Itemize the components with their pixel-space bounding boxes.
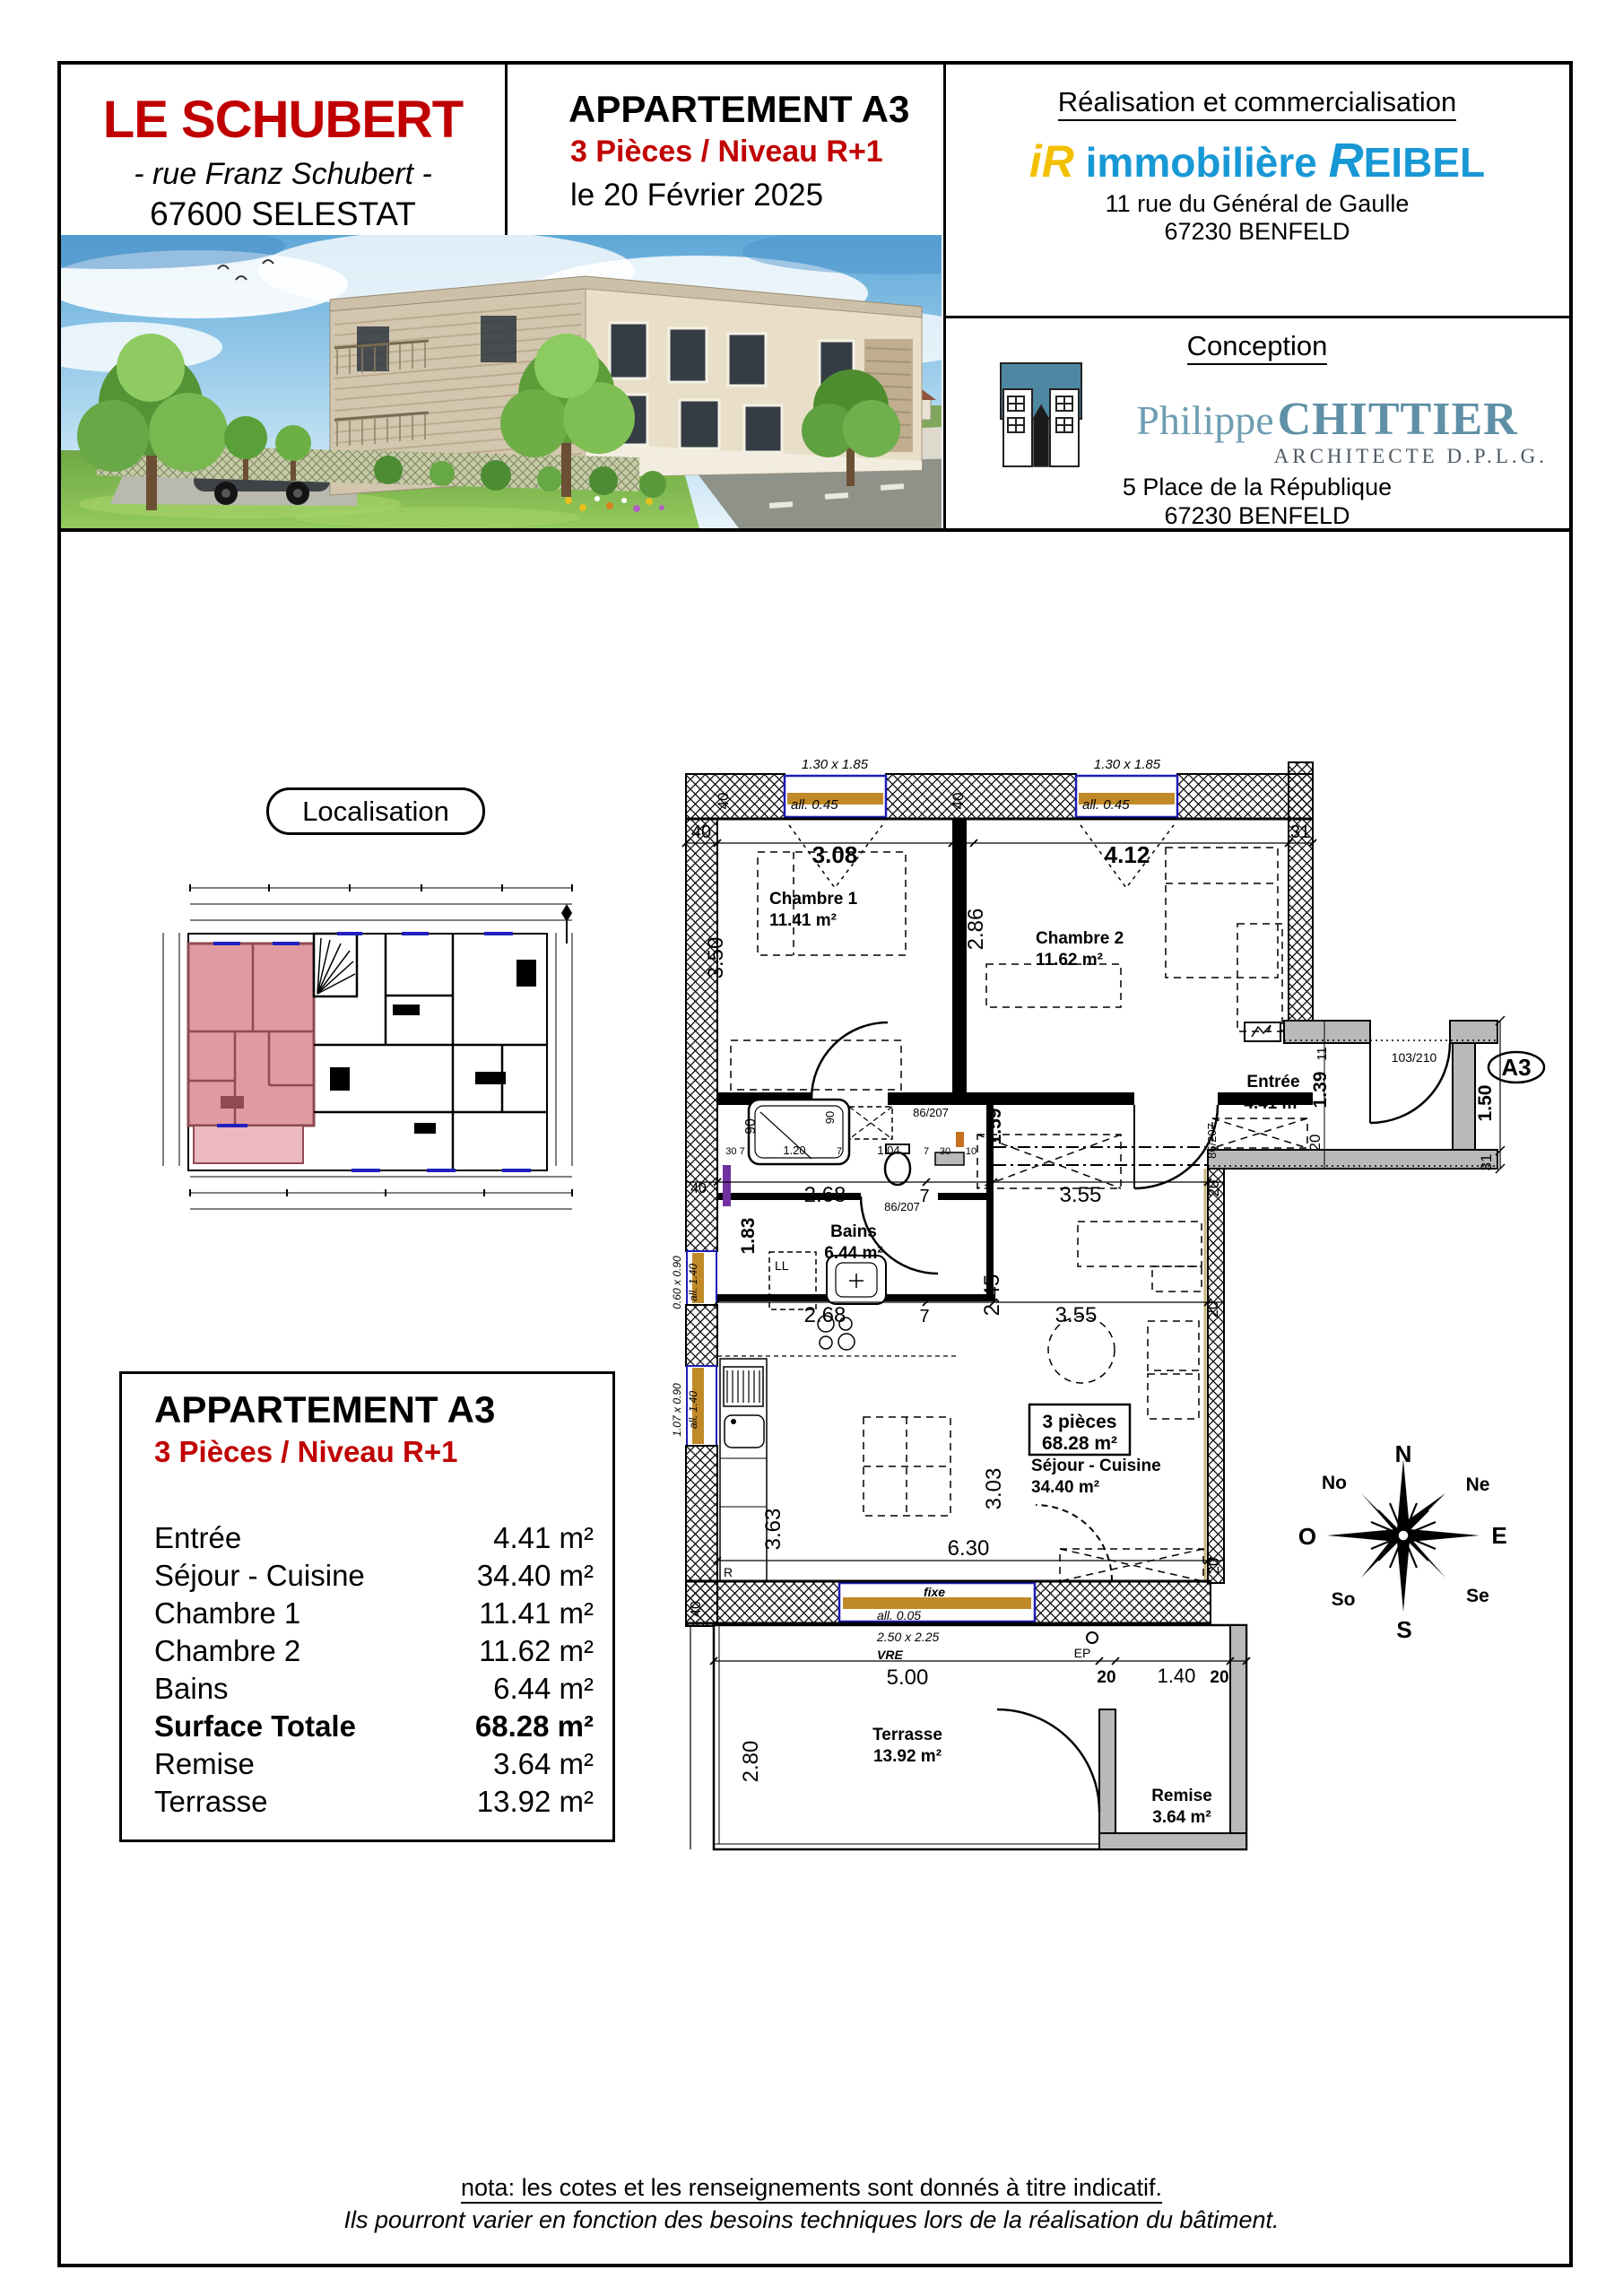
dim: 6.30 xyxy=(948,1536,990,1561)
project-street: - rue Franz Schubert - xyxy=(61,157,505,192)
window-size-label: 1.07 x 0.90 xyxy=(671,1383,683,1437)
dim: 40 xyxy=(690,1181,707,1196)
dim: 20 xyxy=(1205,1180,1222,1197)
dim: 3.63 xyxy=(761,1509,785,1551)
dim: 1.83 xyxy=(738,1218,759,1255)
building-render-image xyxy=(61,235,942,528)
project-city: 67600 SELESTAT xyxy=(61,196,505,233)
table-row: Chambre 111.41 m² xyxy=(154,1595,594,1632)
table-row: Chambre 211.62 m² xyxy=(154,1632,594,1670)
dim: 40 xyxy=(715,793,732,810)
room-area: 11.41 m² xyxy=(769,911,837,930)
dim: 3.03 xyxy=(982,1468,1006,1510)
dim: 1.59 xyxy=(985,1109,1005,1145)
compass-se: Se xyxy=(1466,1586,1489,1606)
dim: 11 xyxy=(1315,1047,1330,1061)
window-sill-label: all. 1.40 xyxy=(687,1391,699,1429)
architect-title: ARCHITECTE D.P.L.G. xyxy=(1094,445,1560,468)
table-row-total: Surface Totale68.28 m² xyxy=(154,1708,594,1745)
washer-label: LL xyxy=(775,1258,789,1273)
room-label: Entrée xyxy=(1246,1073,1299,1091)
dim: 1.40 xyxy=(1158,1665,1196,1687)
apartment-type: 3 Pièces / Niveau R+1 xyxy=(570,135,947,170)
table-row: Séjour - Cuisine34.40 m² xyxy=(154,1557,594,1595)
dim: 90 xyxy=(823,1111,837,1124)
conception-heading: Conception xyxy=(947,330,1567,362)
dim: 30 xyxy=(940,1146,950,1157)
dim: 1.39 xyxy=(1310,1072,1331,1109)
surface-table-rows: Entrée4.41 m² Séjour - Cuisine34.40 m² C… xyxy=(154,1519,594,1821)
compass-rose: N Ne E Se S So O No xyxy=(1298,1440,1507,1643)
floor-plan: 1.30 x 1.85 1.30 x 1.85 all. 0.45 all. 0… xyxy=(668,749,1574,1892)
reibel-ir-mark: iR xyxy=(1029,136,1074,187)
door-label: 103/210 xyxy=(1392,1050,1437,1065)
dim: 2.45 xyxy=(980,1274,1004,1317)
localisation-label: Localisation xyxy=(266,787,485,835)
room-area: 13.92 m² xyxy=(873,1747,942,1766)
dim: 2.86 xyxy=(964,909,988,951)
door-label: 86/207 xyxy=(913,1106,949,1119)
compass-e: E xyxy=(1491,1522,1506,1549)
dim: 3.55 xyxy=(1060,1183,1102,1207)
dim: 2.68 xyxy=(804,1303,846,1327)
localisation-miniplan xyxy=(143,865,592,1220)
surface-table-subtitle: 3 Pièces / Niveau R+1 xyxy=(154,1435,457,1469)
table-row: Remise3.64 m² xyxy=(154,1745,594,1783)
dim: 10 xyxy=(966,1146,976,1157)
compass-n: N xyxy=(1395,1440,1412,1467)
dim: 2.68 xyxy=(804,1183,846,1207)
dim: 7 xyxy=(919,1187,929,1206)
room-label: Chambre 2 xyxy=(1036,929,1124,948)
table-row: Terrasse13.92 m² xyxy=(154,1783,594,1821)
dim: 20 xyxy=(1097,1668,1115,1687)
dim: 7 xyxy=(954,846,964,865)
reibel-rest: EIBEL xyxy=(1364,139,1485,186)
dim: 5.00 xyxy=(887,1665,929,1690)
dim: 2.80 xyxy=(739,1741,763,1783)
room-area: 4.41 m² xyxy=(1244,1094,1302,1113)
dim: 31 xyxy=(1290,822,1310,842)
dim: 1.20 xyxy=(783,1144,805,1157)
label: R xyxy=(724,1565,733,1579)
dim: 1.50 xyxy=(1475,1085,1496,1122)
apartment-badge: A3 xyxy=(1501,1054,1531,1081)
dim: 7 xyxy=(924,1146,929,1157)
dim: 4.12 xyxy=(1105,841,1150,868)
summary-type: 3 pièces xyxy=(1043,1412,1117,1432)
footer-note-1: nota: les cotes et les renseignements so… xyxy=(57,2174,1566,2202)
room-label: Terrasse xyxy=(872,1726,942,1744)
window-sill-label: all. 0.45 xyxy=(1082,797,1130,813)
dim: 7 xyxy=(837,1146,842,1157)
room-label: Bains xyxy=(830,1222,877,1241)
dim: 40 xyxy=(691,822,711,842)
window-type-label: VRE xyxy=(877,1648,903,1662)
window-sill-label: all. 1.40 xyxy=(687,1264,699,1301)
dim: 20 xyxy=(1205,1558,1222,1575)
window-label: fixe xyxy=(924,1585,945,1599)
compass-no: No xyxy=(1322,1473,1347,1493)
dim: 3.50 xyxy=(704,937,728,979)
room-area: 3.64 m² xyxy=(1152,1808,1211,1827)
table-row: Entrée4.41 m² xyxy=(154,1519,594,1557)
realisation-heading: Réalisation et commercialisation xyxy=(947,86,1567,118)
room-area: 6.44 m² xyxy=(824,1244,882,1263)
dim: 30 7 xyxy=(725,1146,744,1157)
summary-area: 68.28 m² xyxy=(1042,1433,1117,1454)
dim: 40 xyxy=(950,793,967,810)
architect-name: Philippe CHITTIER xyxy=(1094,393,1560,446)
reibel-logo: iR immobilière REIBEL xyxy=(947,133,1567,188)
room-area: 34.40 m² xyxy=(1031,1478,1099,1497)
window-sill-label: all. 0.05 xyxy=(877,1608,921,1622)
footer-note-2: Ils pourront varier en fonction des beso… xyxy=(57,2206,1566,2234)
header-divider-left xyxy=(505,61,508,237)
dim: 20 xyxy=(1306,1135,1324,1152)
window-sill-label: all. 0.45 xyxy=(791,797,838,813)
dim: 20 xyxy=(1210,1668,1228,1687)
reibel-name: immobilière xyxy=(1086,139,1317,186)
compass-so: So xyxy=(1332,1589,1356,1610)
table-row: Bains6.44 m² xyxy=(154,1670,594,1708)
lamp-marker xyxy=(561,904,572,944)
apartment-title: APPARTEMENT A3 xyxy=(568,88,945,131)
door-label: 86/207 xyxy=(884,1200,920,1213)
dim: 20 xyxy=(1204,1301,1221,1318)
dim: 31 xyxy=(1478,1154,1495,1171)
dim: 90 xyxy=(743,1118,759,1135)
dim: 7 xyxy=(919,1307,929,1326)
reibel-r: R xyxy=(1329,134,1364,187)
door-label: 86/207 xyxy=(1205,1123,1219,1159)
architect-logo-icon xyxy=(1000,362,1082,474)
compass-ne: Ne xyxy=(1466,1474,1490,1495)
header-divider-right xyxy=(943,61,946,531)
compass-s: S xyxy=(1396,1616,1411,1643)
dim: 3.55 xyxy=(1055,1303,1098,1327)
conception-address1: 5 Place de la République xyxy=(947,474,1567,501)
conception-address2: 67230 BENFELD xyxy=(947,502,1567,530)
document-date: le 20 Février 2025 xyxy=(570,178,947,213)
realisation-address1: 11 rue du Général de Gaulle xyxy=(947,190,1567,218)
dim: 1.04 xyxy=(877,1144,899,1157)
project-title: LE SCHUBERT xyxy=(61,90,505,150)
room-area: 11.62 m² xyxy=(1036,951,1103,970)
surface-table-title: APPARTEMENT A3 xyxy=(154,1388,495,1431)
room-label: Chambre 1 xyxy=(769,890,858,909)
window-size-label: 2.50 x 2.25 xyxy=(876,1630,939,1644)
compass-o: O xyxy=(1298,1523,1316,1550)
realisation-address2: 67230 BENFELD xyxy=(947,218,1567,246)
window-size-label: 1.30 x 1.85 xyxy=(802,757,869,772)
dim: 40 xyxy=(689,1601,704,1617)
window-size-label: 1.30 x 1.85 xyxy=(1094,757,1161,772)
dim: 3.08 xyxy=(812,841,858,868)
right-column-divider xyxy=(946,316,1569,318)
room-label: Séjour - Cuisine xyxy=(1031,1457,1161,1475)
window-size-label: 0.60 x 0.90 xyxy=(671,1256,683,1309)
label: EP xyxy=(1074,1646,1091,1660)
room-label: Remise xyxy=(1151,1787,1212,1805)
